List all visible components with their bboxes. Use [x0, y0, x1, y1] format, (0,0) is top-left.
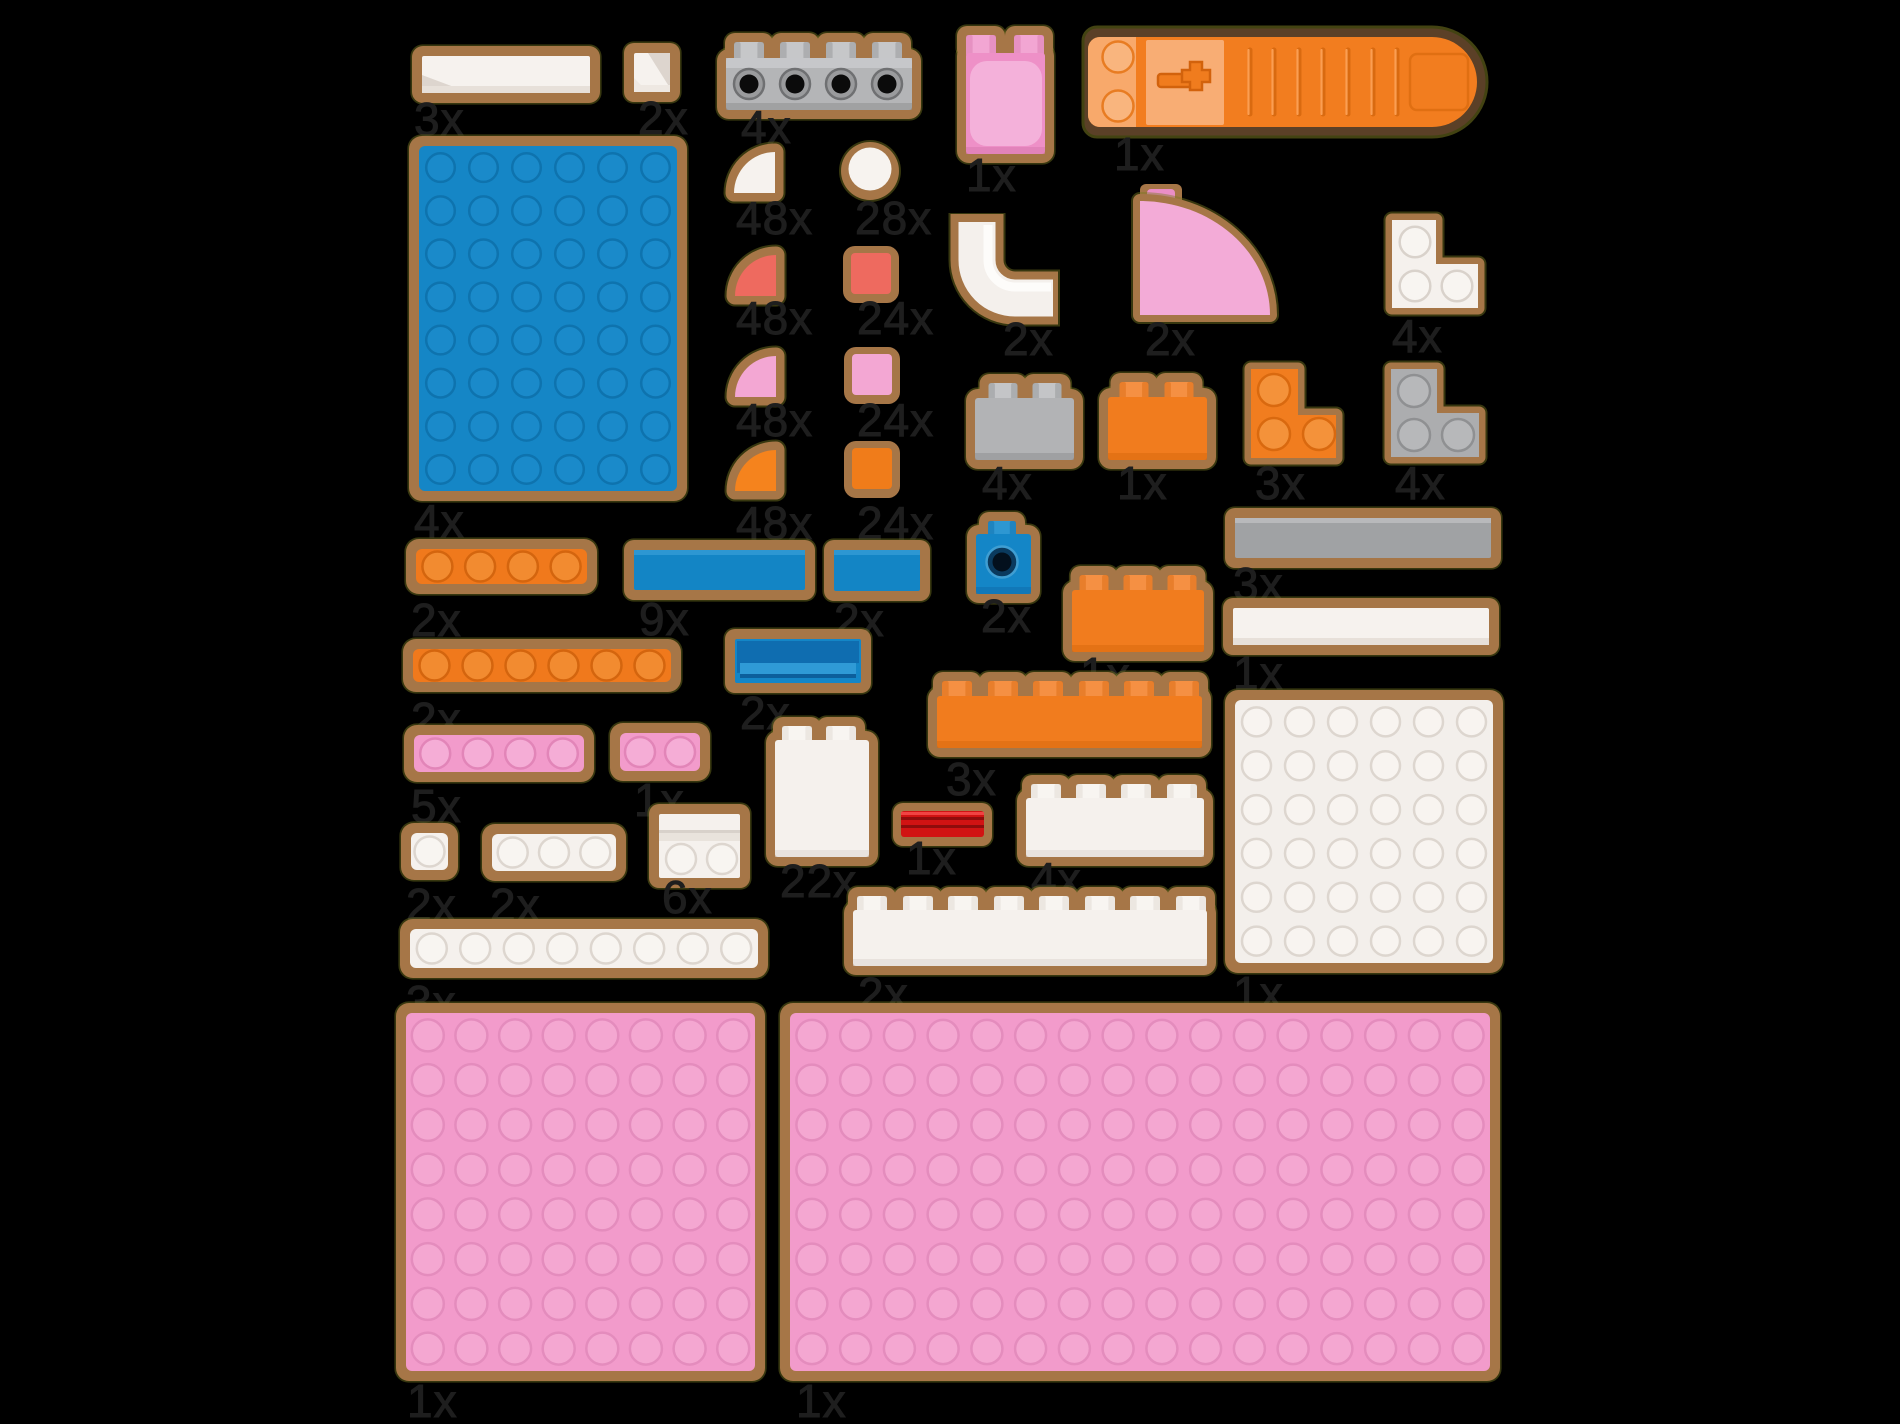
svg-text:2x: 2x: [1003, 313, 1054, 365]
svg-text:1x: 1x: [966, 149, 1017, 201]
svg-text:28x: 28x: [855, 192, 932, 244]
svg-text:1x: 1x: [906, 832, 957, 884]
svg-text:6x: 6x: [662, 871, 713, 923]
svg-text:2x: 2x: [1145, 313, 1196, 365]
svg-text:4x: 4x: [1395, 457, 1446, 509]
svg-text:1x: 1x: [796, 1375, 847, 1424]
svg-text:24x: 24x: [857, 394, 934, 446]
svg-text:24x: 24x: [857, 292, 934, 344]
svg-text:4x: 4x: [982, 457, 1033, 509]
svg-text:4x: 4x: [1392, 310, 1443, 362]
svg-text:1x: 1x: [407, 1375, 458, 1424]
svg-text:3x: 3x: [1255, 457, 1306, 509]
svg-text:1x: 1x: [1114, 128, 1165, 180]
svg-text:48x: 48x: [736, 192, 813, 244]
svg-text:2x: 2x: [981, 590, 1032, 642]
svg-text:22x: 22x: [780, 855, 857, 907]
svg-text:9x: 9x: [639, 593, 690, 645]
svg-text:48x: 48x: [736, 292, 813, 344]
svg-text:3x: 3x: [946, 753, 997, 805]
svg-text:48x: 48x: [736, 394, 813, 446]
svg-text:1x: 1x: [1117, 457, 1168, 509]
